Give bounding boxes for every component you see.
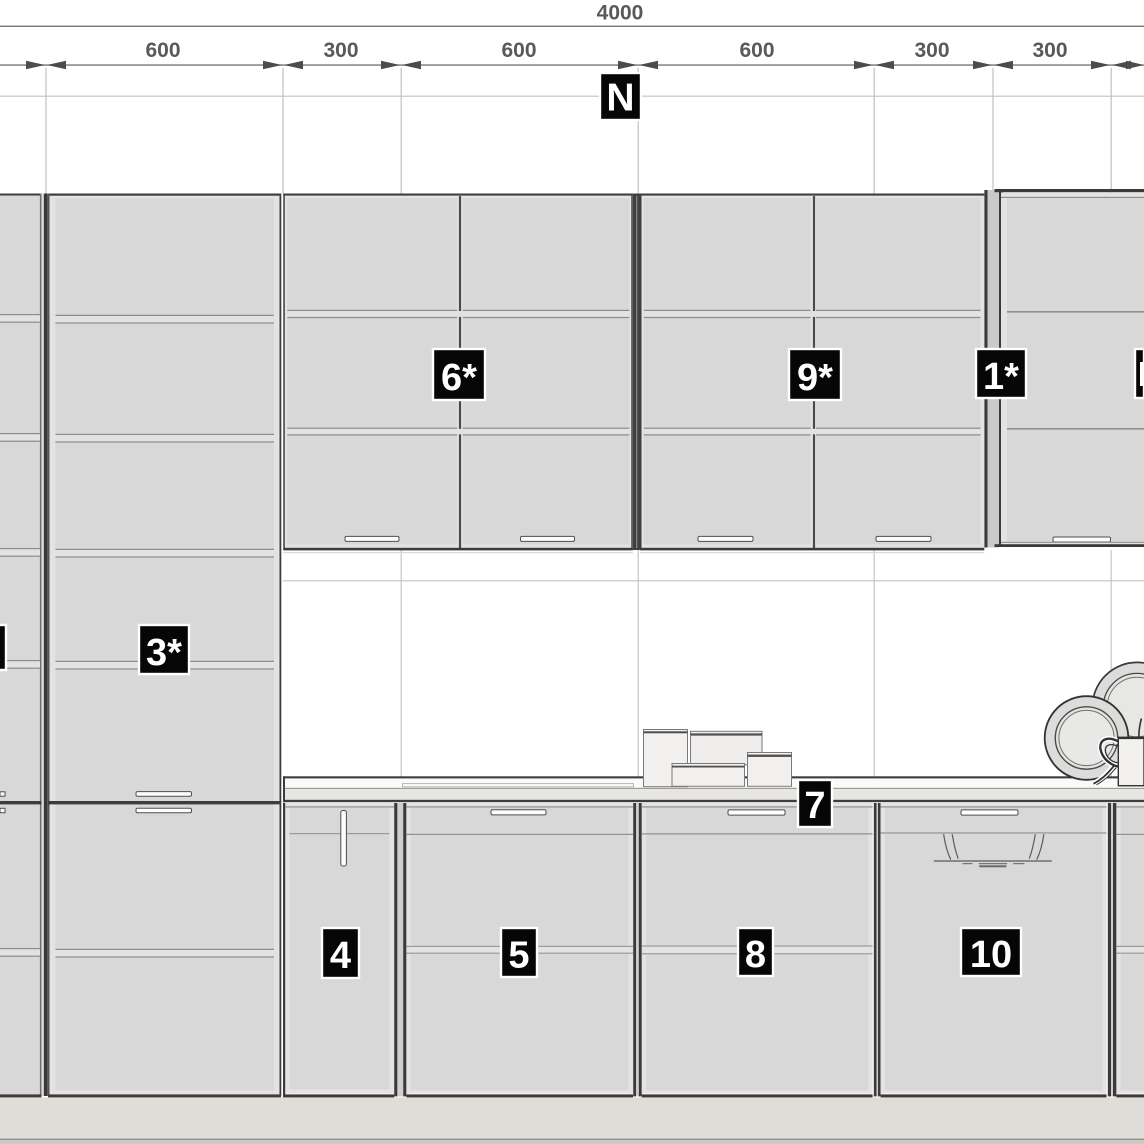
- svg-text:300: 300: [914, 39, 949, 62]
- svg-text:9*: 9*: [797, 357, 833, 399]
- svg-text:N: N: [606, 77, 634, 120]
- svg-text:600: 600: [739, 39, 774, 62]
- svg-text:1*: 1*: [983, 356, 1019, 398]
- svg-text:600: 600: [501, 39, 536, 62]
- svg-text:7: 7: [804, 785, 825, 827]
- svg-text:8: 8: [745, 934, 766, 976]
- svg-text:600: 600: [145, 39, 180, 62]
- svg-text:4: 4: [330, 935, 351, 977]
- svg-text:6*: 6*: [441, 357, 477, 399]
- svg-text:300: 300: [323, 39, 358, 62]
- svg-text:5: 5: [508, 935, 529, 977]
- svg-text:4000: 4000: [597, 2, 644, 25]
- svg-text:3*: 3*: [146, 632, 182, 674]
- svg-text:300: 300: [1032, 39, 1067, 62]
- svg-text:10: 10: [970, 934, 1012, 976]
